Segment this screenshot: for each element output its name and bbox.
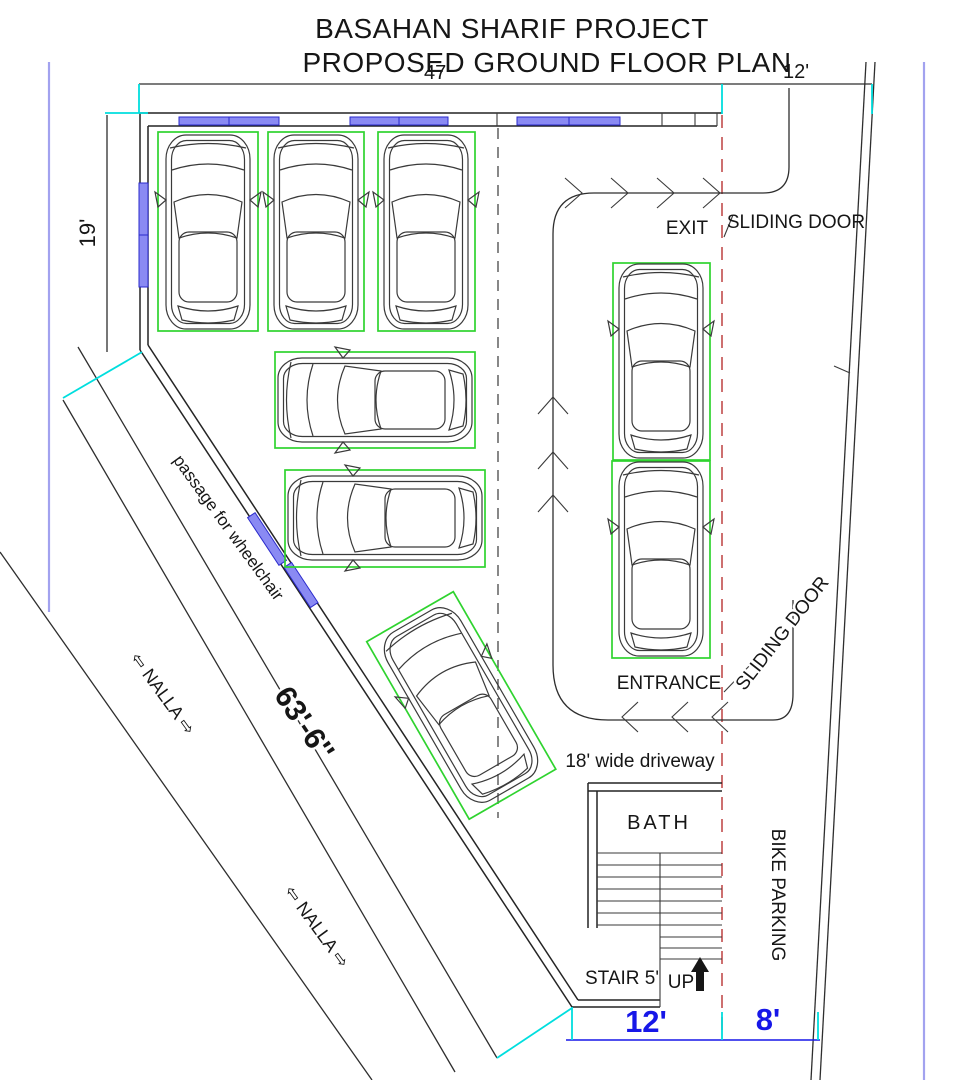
dim-left-height: 19': [75, 219, 100, 248]
road-boundary-tick: [834, 366, 850, 373]
passage-label: passage for wheelchair: [169, 451, 287, 604]
cars: [155, 135, 714, 816]
dim-angled-boundary: 63'-6'': [267, 681, 340, 767]
driveway-width-label: 18' wide driveway: [565, 751, 715, 772]
dim-top-width: 47': [424, 62, 450, 84]
up-label: UP: [668, 972, 694, 993]
window-strip: [139, 117, 620, 608]
car: [367, 594, 556, 815]
nalla-channel-right-edge: [63, 400, 455, 1072]
dim-bottom-gate: 12': [625, 1004, 667, 1039]
car: [373, 135, 479, 329]
car: [608, 264, 714, 458]
entrance-label: ENTRANCE: [617, 673, 722, 694]
floor-plan-drawing: BASAHAN SHARIF PROJECT PROPOSED GROUND F…: [0, 0, 960, 1080]
stair-label: STAIR 5': [585, 968, 659, 989]
dim-bottom-right: 8': [756, 1002, 781, 1037]
bike-parking-label: BIKE PARKING: [767, 829, 788, 962]
car: [288, 465, 482, 571]
car: [608, 462, 714, 656]
sliding-door-exit-label: SLIDING DOOR: [727, 212, 865, 233]
title-line2: PROPOSED GROUND FLOOR PLAN: [302, 47, 791, 78]
nalla-channel-left-edge: [0, 552, 372, 1080]
car: [278, 347, 472, 453]
nalla-upper-label: ⇦ NALLA ⇨: [126, 649, 199, 739]
sliding-door-entrance-label: SLIDING DOOR: [732, 573, 834, 695]
floor-plan-page: BASAHAN SHARIF PROJECT PROPOSED GROUND F…: [0, 0, 960, 1080]
bath-label: BATH: [627, 812, 691, 834]
exit-label: EXIT: [666, 218, 709, 239]
dim-top-gate: 12': [783, 61, 809, 83]
car: [155, 135, 261, 329]
car: [263, 135, 369, 329]
title-line1: BASAHAN SHARIF PROJECT: [315, 13, 709, 44]
nalla-lower-label: ⇦ NALLA ⇨: [280, 882, 353, 972]
entrance-direction-chevrons: [622, 702, 728, 732]
driveway-path: [553, 88, 793, 720]
